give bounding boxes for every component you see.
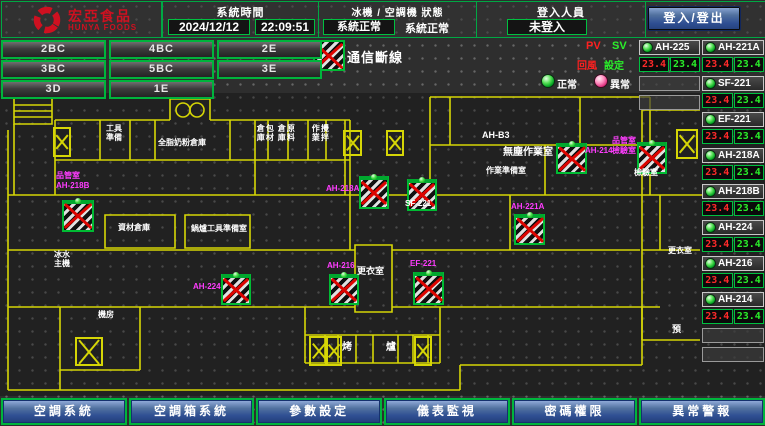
equipment-empty-slot	[702, 347, 764, 362]
setting-label: 設定	[604, 57, 624, 72]
floor-button-4BC[interactable]: 4BC	[109, 40, 214, 59]
nav-button-空調箱系統[interactable]: 空調箱系統	[131, 400, 253, 423]
bottom-nav-bar: 空調系統空調箱系統參數設定儀表監視密碼權限異常警報	[0, 398, 765, 425]
equipment-column-1: AH-22523.423.4	[639, 40, 700, 114]
system-time-label: 系統時間	[163, 4, 318, 20]
equipment-AH-218B[interactable]: AH-218B	[702, 184, 764, 199]
nav-button-參數設定[interactable]: 參數設定	[258, 400, 380, 423]
equipment-AH-225[interactable]: AH-225	[639, 40, 700, 55]
floor-button-2E[interactable]: 2E	[217, 40, 322, 59]
equipment-AH-221A[interactable]: AH-221A	[702, 40, 764, 55]
abnormal-legend-label: 異常	[610, 76, 630, 91]
nav-button-密碼權限[interactable]: 密碼權限	[514, 400, 636, 423]
pv-label: PV	[586, 40, 601, 52]
room-label: 預	[672, 324, 681, 334]
device-label: AH-216	[327, 261, 355, 271]
system-date-value: 2024/12/12	[168, 19, 250, 35]
system-time-panel: 系統時間 2024/12/12 22:09:51	[162, 1, 319, 38]
machine-status-label: 冰機 / 空調機 狀態	[319, 4, 476, 19]
nav-button-空調系統[interactable]: 空調系統	[3, 400, 125, 423]
shaft-box	[676, 129, 698, 159]
floor-button-5BC[interactable]: 5BC	[109, 60, 214, 79]
device-label: AH-218A	[326, 184, 359, 194]
floor-button-3E[interactable]: 3E	[217, 60, 322, 79]
floor-button-3BC[interactable]: 3BC	[1, 60, 106, 79]
room-label: 更衣室	[668, 246, 692, 255]
shaft-box	[325, 336, 342, 366]
device-disconnect-box[interactable]	[329, 274, 359, 305]
device-disconnect-box[interactable]	[221, 274, 251, 305]
room-label: 冰水主機	[54, 250, 70, 268]
device-disconnect-box[interactable]	[359, 176, 389, 209]
room-label: 攪拌作業	[311, 124, 329, 142]
return-air-label: 回風	[577, 57, 597, 72]
equipment-empty-slot	[639, 76, 700, 91]
room-label: 包材倉庫	[256, 124, 274, 142]
room-label: 全脂奶粉倉庫	[158, 138, 206, 147]
room-label: 更衣室	[357, 266, 384, 276]
normal-legend-label: 正常	[557, 76, 577, 91]
equipment-AH-218A[interactable]: AH-218A	[702, 148, 764, 163]
nav-button-異常警報[interactable]: 異常警報	[641, 400, 763, 423]
equipment-values-AH-216: 23.423.4	[702, 273, 764, 288]
system-clock-value: 22:09:51	[255, 19, 315, 35]
device-label: AH-221A	[511, 202, 544, 212]
nav-button-儀表監視[interactable]: 儀表監視	[386, 400, 508, 423]
device-disconnect-box[interactable]	[413, 272, 444, 305]
sv-label: SV	[612, 40, 627, 52]
equipment-values-AH-214: 23.423.4	[702, 309, 764, 324]
room-label: 資材倉庫	[118, 223, 150, 232]
hmi-screen: 宏亞食品 HUNYA FOODS 系統時間 2024/12/12 22:09:5…	[0, 0, 765, 426]
floor-button-grid: 2BC4BC2E3BC5BC3E3D1E	[1, 40, 322, 99]
device-label: 品管室AH-218B	[56, 171, 89, 190]
room-label: 工具準備	[106, 124, 122, 142]
room-label: 原料倉庫	[277, 124, 295, 142]
room-label: SF-221	[405, 199, 431, 208]
device-label: 品管室檢驗室	[612, 136, 636, 155]
disconnect-legend-label: 通信斷線	[347, 47, 403, 66]
device-label: EF-221	[410, 259, 436, 269]
login-person-panel: 登入人員 未登入	[476, 1, 646, 38]
equipment-values-EF-221: 23.423.4	[702, 129, 764, 144]
logo-panel: 宏亞食品 HUNYA FOODS	[1, 1, 162, 38]
equipment-empty-slot	[702, 328, 764, 343]
equipment-values-AH-218A: 23.423.4	[702, 165, 764, 180]
floor-button-1E[interactable]: 1E	[109, 80, 214, 99]
equipment-values-AH-224: 23.423.4	[702, 237, 764, 252]
equipment-values-AH-221A: 23.423.4	[702, 57, 764, 72]
equipment-values-SF-221: 23.423.4	[702, 93, 764, 108]
room-label: 爐	[386, 342, 396, 354]
device-disconnect-box[interactable]	[62, 200, 94, 232]
shaft-box	[386, 130, 404, 156]
hunya-logo-icon	[30, 5, 64, 35]
equipment-AH-214[interactable]: AH-214	[702, 292, 764, 307]
equipment-values-AH-225: 23.423.4	[639, 57, 700, 72]
device-label: AH-224	[193, 282, 221, 292]
equipment-SF-221[interactable]: SF-221	[702, 76, 764, 91]
room-label: 烤	[342, 342, 352, 354]
room-label: 無塵作業室	[503, 147, 553, 159]
equipment-AH-216[interactable]: AH-216	[702, 256, 764, 271]
shaft-box	[414, 336, 432, 366]
equipment-AH-224[interactable]: AH-224	[702, 220, 764, 235]
login-person-value: 未登入	[507, 19, 587, 35]
floor-button-2BC[interactable]: 2BC	[1, 40, 106, 59]
shaft-box	[343, 130, 362, 156]
chiller-status-value: 系統正常	[323, 19, 395, 35]
login-person-label: 登入人員	[477, 4, 645, 20]
equipment-empty-slot	[639, 95, 700, 110]
room-label: 鍋爐工具準備室	[191, 224, 247, 233]
floor-button-3D[interactable]: 3D	[1, 80, 106, 99]
brand-name-en: HUNYA FOODS	[68, 23, 137, 32]
room-label: 機房	[98, 310, 114, 319]
equipment-column-2: AH-221A23.423.4SF-22123.423.4EF-22123.42…	[702, 40, 764, 366]
shaft-box	[75, 337, 103, 366]
equipment-EF-221[interactable]: EF-221	[702, 112, 764, 127]
login-logout-button[interactable]: 登入/登出	[647, 6, 741, 31]
device-label: AH-214	[585, 146, 613, 156]
shaft-box	[53, 127, 71, 157]
room-label: AH-B3	[482, 130, 510, 140]
device-disconnect-box[interactable]	[514, 214, 545, 245]
abnormal-led-icon	[594, 74, 608, 88]
equipment-values-AH-218B: 23.423.4	[702, 201, 764, 216]
device-disconnect-box[interactable]	[556, 143, 587, 174]
normal-led-icon	[541, 74, 555, 88]
ahu-status-value: 系統正常	[405, 20, 449, 36]
machine-status-panel: 冰機 / 空調機 狀態 系統正常 系統正常	[318, 1, 477, 38]
room-label: 作業準備室	[486, 166, 526, 175]
room-label: 檢驗室	[634, 168, 658, 177]
